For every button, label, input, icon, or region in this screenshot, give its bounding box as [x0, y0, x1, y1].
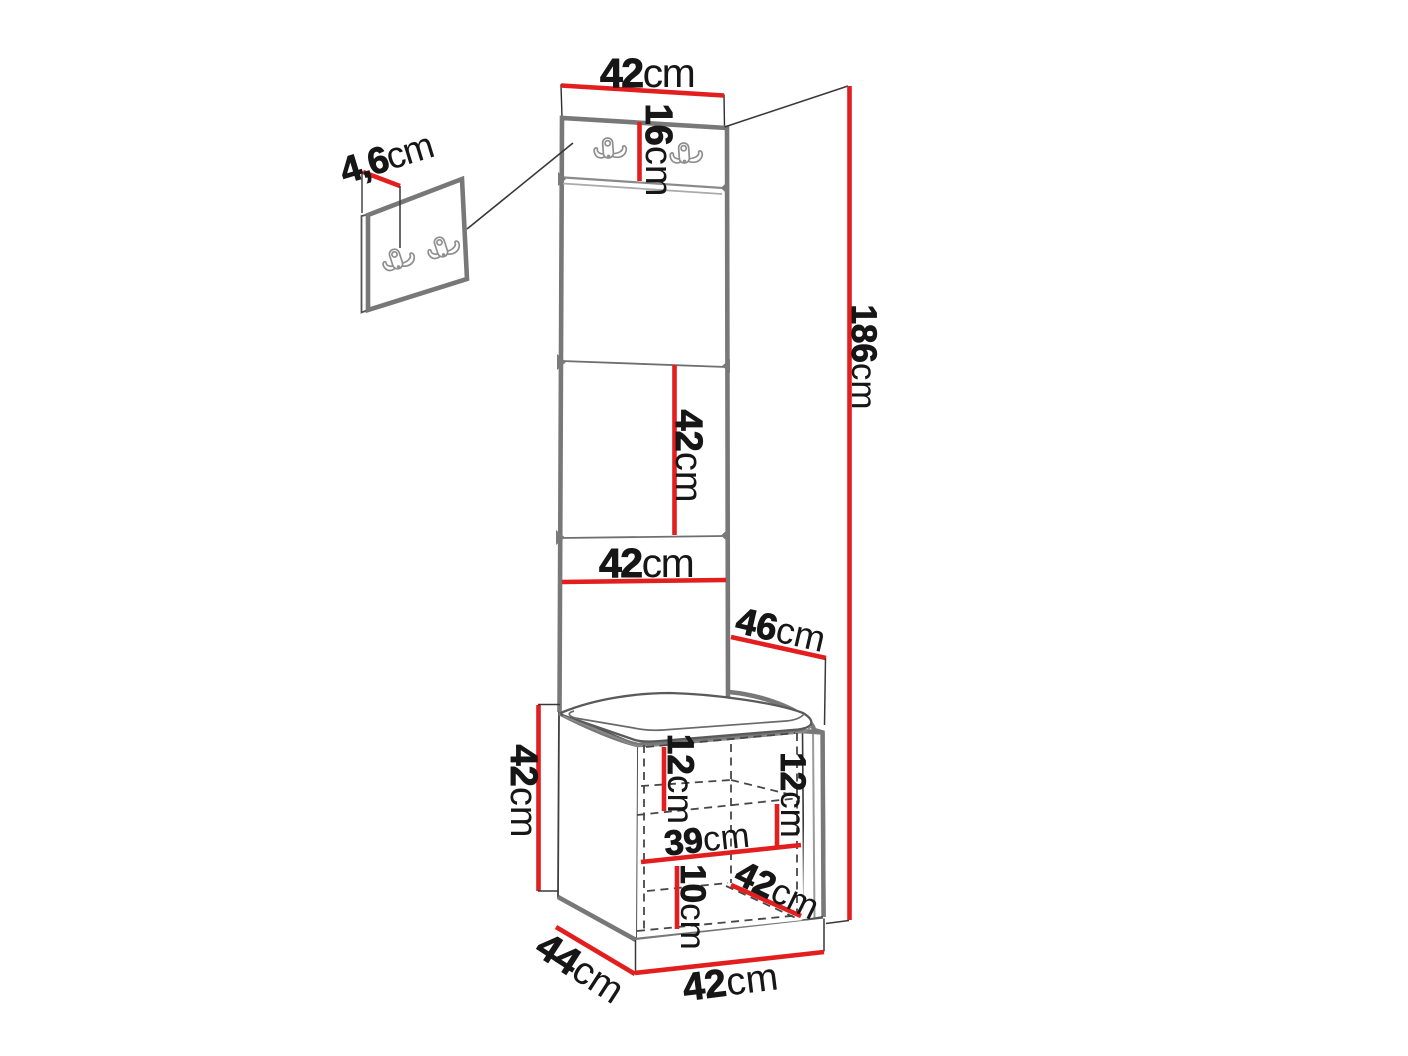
svg-text:12cm: 12cm — [660, 734, 701, 824]
svg-text:42cm: 42cm — [667, 410, 709, 503]
svg-text:42cm: 42cm — [599, 540, 693, 586]
svg-text:12cm: 12cm — [773, 752, 812, 838]
svg-text:186cm: 186cm — [844, 304, 883, 409]
svg-text:42cm: 42cm — [502, 745, 544, 838]
svg-text:42cm: 42cm — [600, 50, 694, 96]
svg-text:16cm: 16cm — [637, 104, 679, 197]
svg-text:10cm: 10cm — [673, 864, 712, 950]
